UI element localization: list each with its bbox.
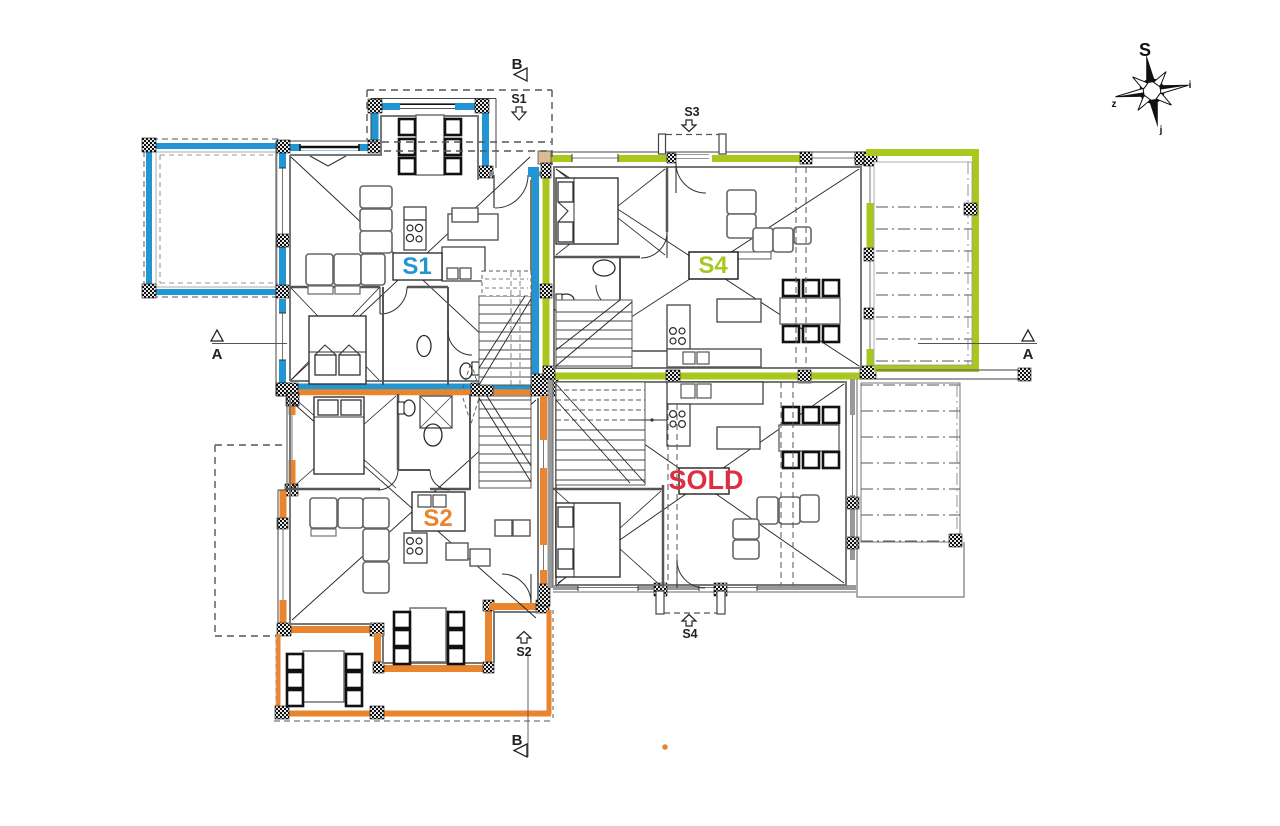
svg-text:A: A <box>212 346 223 363</box>
svg-text:S2: S2 <box>423 505 452 532</box>
svg-text:S2: S2 <box>516 645 531 659</box>
svg-text:z: z <box>1112 99 1117 110</box>
svg-text:S4: S4 <box>682 627 697 641</box>
svg-text:S4: S4 <box>698 252 728 279</box>
svg-text:i: i <box>1189 80 1192 91</box>
svg-text:S1: S1 <box>402 253 431 280</box>
svg-text:A: A <box>1023 346 1034 363</box>
svg-text:S3: S3 <box>684 105 699 119</box>
svg-text:S: S <box>1139 40 1151 60</box>
svg-text:j: j <box>1159 125 1163 136</box>
svg-text:SOLD: SOLD <box>668 465 743 495</box>
svg-text:S1: S1 <box>511 92 526 106</box>
